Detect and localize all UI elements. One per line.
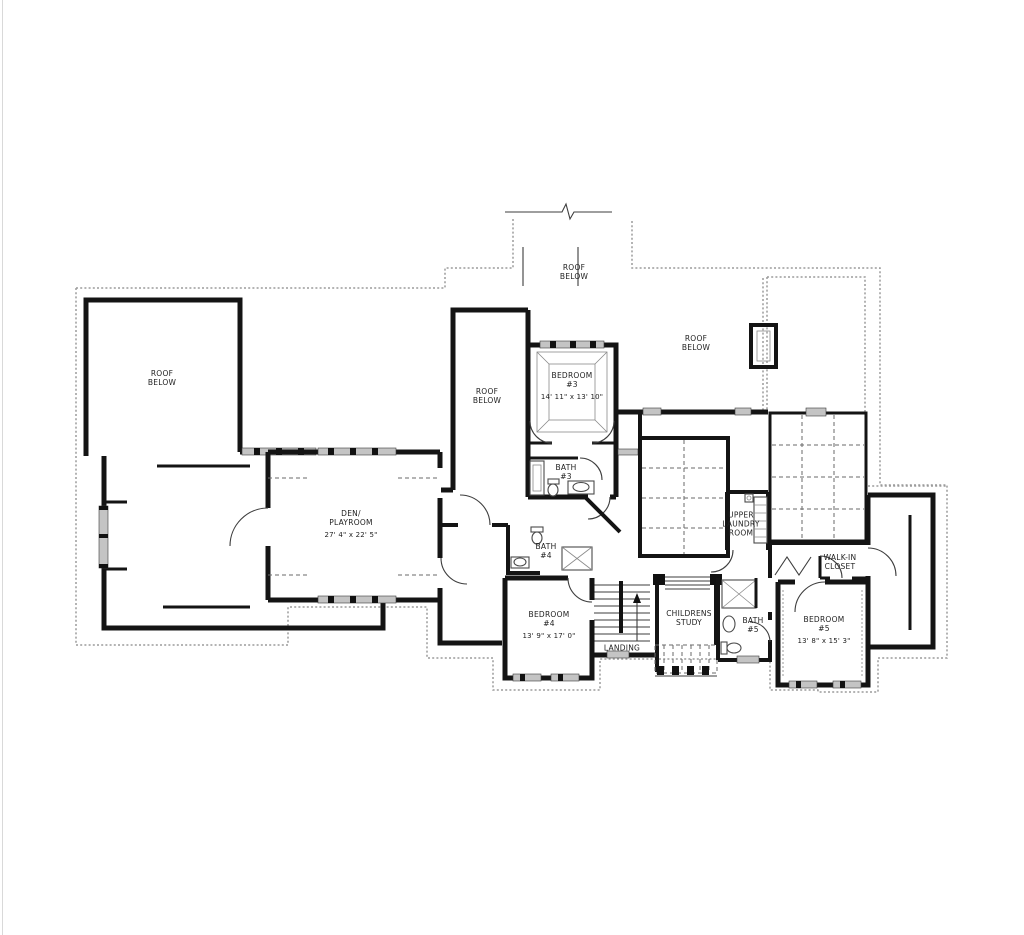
room-label-roof-below-left: ROOF BELOW [148,369,176,387]
double-door-icon [775,557,811,575]
toilet-icon [548,479,559,496]
sink-icon [511,557,529,568]
hall-bath4-walls [441,495,620,584]
floor-plan-drawing [0,0,1024,935]
room-label-walk-in-closet: WALK-IN CLOSET [824,553,857,571]
room-label-den: DEN/ PLAYROOM 27' 4" x 22' 5" [324,509,377,539]
room-label-bedroom5: BEDROOM #5 13' 8" x 15' 3" [797,615,850,645]
room-label-roof-below-right: ROOF BELOW [682,334,710,352]
sink-icon [723,616,735,632]
room-label-bath3: BATH #3 [556,463,577,481]
room-label-bath4: BATH #4 [536,542,557,560]
sink-icon [568,481,594,494]
room-label-roof-below-center: ROOF BELOW [473,387,501,405]
left-roof-wing-walls [86,300,383,628]
shower-icon [722,580,756,608]
toilet-icon [721,642,741,654]
den-playroom-walls [230,448,502,643]
tub-icon [530,461,544,495]
break-line-symbol [505,204,612,286]
room-label-upper-laundry: UPPER LAUNDRY ROOM [722,511,759,538]
room-label-bedroom4: BEDROOM #4 13' 9" x 17' 0" [522,610,575,640]
room-label-roof-below-top: ROOF BELOW [560,263,588,281]
room-label-landing: LANDING [604,644,640,653]
right-room-walls [868,495,933,647]
shower-icon [562,547,592,570]
room-label-bedroom3: BEDROOM #3 14' 11" x 13' 10" [541,371,603,401]
floor-plan-page: ROOF BELOW ROOF BELOW ROOF BELOW ROOF BE… [0,0,1024,935]
room-label-childrens-study: CHILDRENS STUDY [666,609,712,627]
room-label-bath5: BATH #5 [743,616,764,634]
